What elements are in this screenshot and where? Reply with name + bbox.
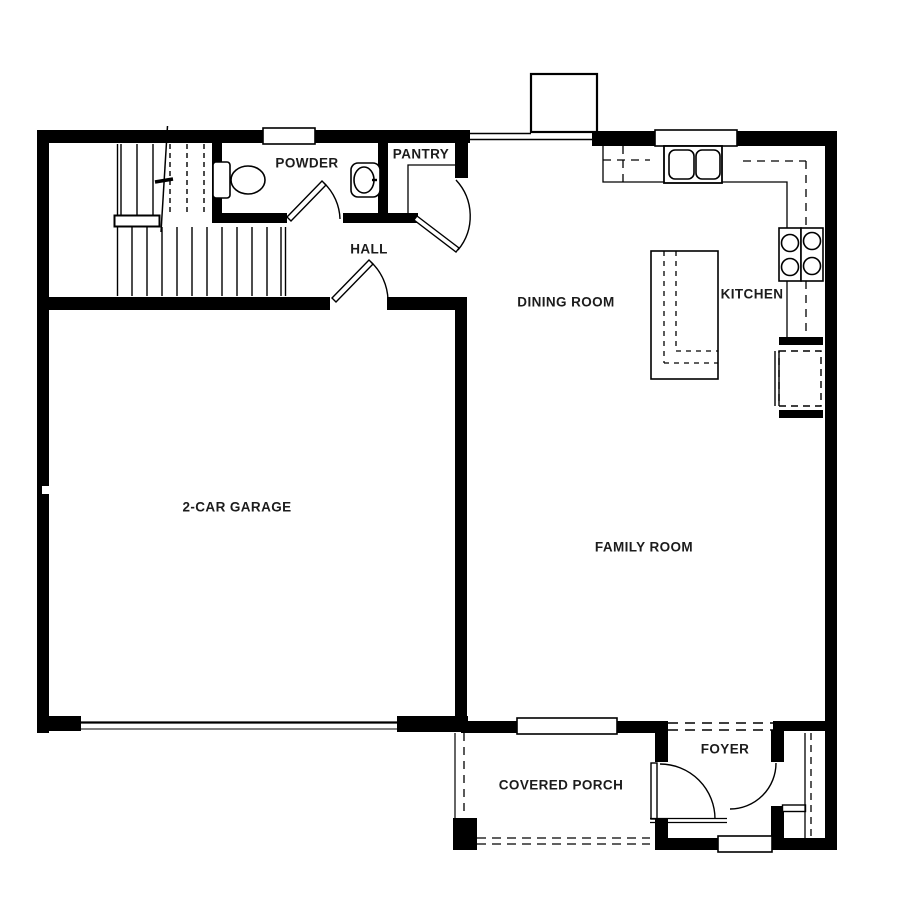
wall-stub xyxy=(779,410,823,418)
kitchen-island xyxy=(651,251,718,379)
kitchen-fixtures xyxy=(603,146,823,418)
front-door xyxy=(651,763,715,819)
refrigerator-icon xyxy=(775,351,821,406)
room-label-garage: 2-CAR GARAGE xyxy=(182,500,291,515)
window-kitchen xyxy=(655,130,737,146)
wall-notch xyxy=(42,486,49,494)
closet-rod-shelf xyxy=(805,733,811,838)
windows xyxy=(263,128,772,852)
wall-stub xyxy=(779,337,823,345)
pantry-shelves xyxy=(408,165,455,213)
window-family-room xyxy=(517,718,617,734)
window-foyer xyxy=(718,836,772,852)
room-label-hall: HALL xyxy=(350,242,388,257)
room-label-pantry: PANTRY xyxy=(393,147,449,162)
room-label-family-room: FAMILY ROOM xyxy=(595,540,693,555)
pantry-door xyxy=(414,180,470,252)
staircase-icon xyxy=(115,126,286,296)
garage-door-icon xyxy=(81,723,397,730)
room-label-covered-porch: COVERED PORCH xyxy=(499,778,623,793)
foyer-opening-dashed xyxy=(668,723,773,730)
garage-entry-door xyxy=(332,260,388,302)
room-label-powder: POWDER xyxy=(275,156,338,171)
fireplace-box-icon xyxy=(468,74,597,140)
window-powder xyxy=(263,128,315,144)
room-label-kitchen: KITCHEN xyxy=(721,287,784,302)
room-label-dining-room: DINING ROOM xyxy=(517,295,614,310)
floor-plan-drawing xyxy=(0,0,900,902)
powder-door xyxy=(287,181,340,221)
toilet-icon xyxy=(213,162,265,198)
room-label-foyer: FOYER xyxy=(701,742,750,757)
closet-door xyxy=(730,763,806,812)
stove-icon xyxy=(779,228,823,281)
bathroom-sink-icon xyxy=(351,163,380,197)
kitchen-sink-icon xyxy=(664,146,722,183)
floor-plan: POWDER PANTRY HALL DINING ROOM KITCHEN 2… xyxy=(0,0,900,902)
